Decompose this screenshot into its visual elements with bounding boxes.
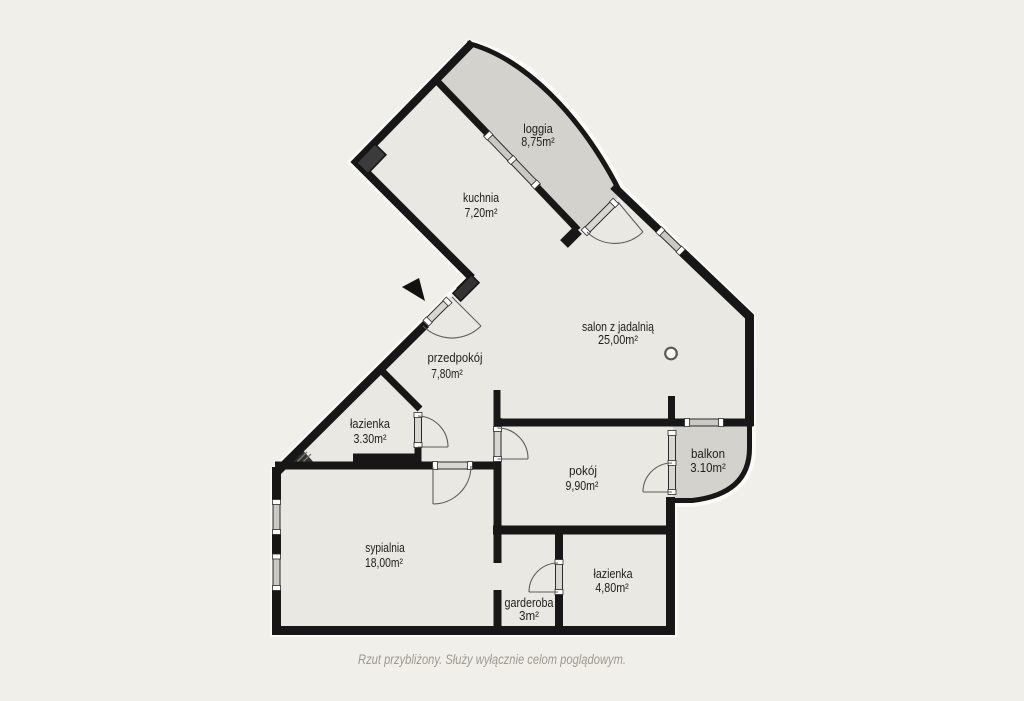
svg-text:18,00m²: 18,00m² [365, 555, 404, 570]
svg-text:sypialnia: sypialnia [365, 540, 405, 555]
svg-text:3.10m²: 3.10m² [690, 460, 726, 475]
svg-text:9,90m²: 9,90m² [566, 478, 600, 493]
svg-text:pokój: pokój [569, 463, 597, 478]
svg-text:7,80m²: 7,80m² [431, 366, 463, 381]
svg-text:balkon: balkon [691, 446, 725, 461]
svg-text:przedpokój: przedpokój [428, 350, 483, 365]
svg-text:Rzut przybliżony. Służy wyłącz: Rzut przybliżony. Służy wyłącznie celom … [358, 652, 626, 667]
svg-text:3m²: 3m² [519, 608, 540, 623]
svg-text:kuchnia: kuchnia [463, 190, 500, 205]
svg-text:3.30m²: 3.30m² [354, 431, 388, 446]
svg-text:25,00m²: 25,00m² [598, 332, 639, 347]
svg-text:4,80m²: 4,80m² [595, 580, 629, 595]
svg-text:łazienka: łazienka [350, 416, 391, 431]
svg-text:7,20m²: 7,20m² [465, 205, 499, 220]
svg-text:8,75m²: 8,75m² [521, 134, 555, 149]
svg-text:łazienka: łazienka [594, 566, 634, 581]
